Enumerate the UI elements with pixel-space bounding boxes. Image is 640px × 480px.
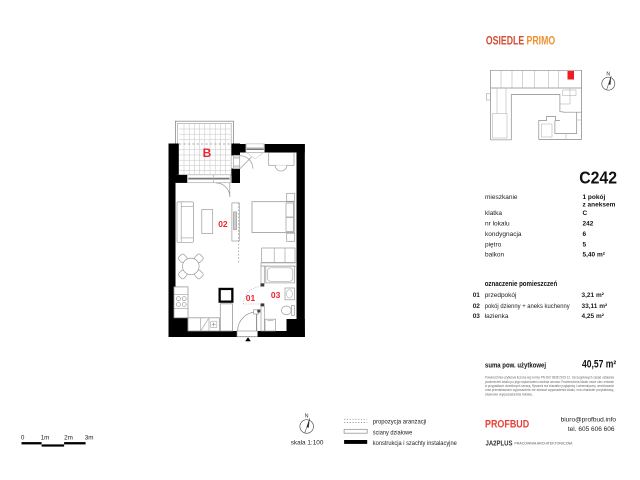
svg-text:N: N bbox=[606, 72, 610, 78]
svg-text:01: 01 bbox=[473, 292, 481, 299]
svg-text:03: 03 bbox=[271, 290, 281, 300]
svg-text:tel. 605 606 606: tel. 605 606 606 bbox=[568, 426, 615, 433]
svg-text:03: 03 bbox=[473, 313, 481, 320]
svg-text:z aneksem: z aneksem bbox=[583, 201, 616, 208]
svg-text:1 pokój: 1 pokój bbox=[583, 194, 606, 201]
svg-text:pokój dzienny + aneks kuchenny: pokój dzienny + aneks kuchenny bbox=[485, 303, 571, 310]
svg-text:B: B bbox=[203, 146, 212, 160]
svg-text:5: 5 bbox=[583, 241, 587, 248]
svg-text:balkon: balkon bbox=[485, 252, 505, 259]
svg-text:3m: 3m bbox=[85, 435, 94, 442]
svg-text:suma pow. użytkowej: suma pow. użytkowej bbox=[485, 360, 546, 369]
svg-text:33,11 m²: 33,11 m² bbox=[582, 303, 608, 310]
svg-text:C242: C242 bbox=[579, 168, 617, 188]
svg-text:0: 0 bbox=[21, 435, 25, 442]
svg-text:C: C bbox=[583, 210, 588, 217]
svg-text:5,40 m²: 5,40 m² bbox=[583, 252, 606, 259]
svg-text:nr lokalu: nr lokalu bbox=[485, 221, 510, 228]
svg-text:01: 01 bbox=[246, 293, 256, 303]
svg-text:4,25 m²: 4,25 m² bbox=[582, 313, 605, 320]
svg-text:40,57 m²: 40,57 m² bbox=[582, 359, 617, 371]
svg-text:02: 02 bbox=[218, 219, 228, 229]
svg-text:N: N bbox=[305, 414, 309, 420]
svg-text:JA2PLUS: JA2PLUS bbox=[486, 440, 513, 447]
svg-text:2m: 2m bbox=[64, 435, 73, 442]
svg-text:łazienka: łazienka bbox=[485, 313, 509, 320]
svg-text:6: 6 bbox=[583, 231, 587, 238]
svg-text:3,21 m²: 3,21 m² bbox=[582, 292, 605, 299]
svg-text:biuro@profbud.info: biuro@profbud.info bbox=[561, 417, 617, 424]
svg-text:PROFBUD: PROFBUD bbox=[485, 418, 529, 430]
svg-text:klatka: klatka bbox=[485, 210, 502, 217]
svg-text:ściany działowe: ściany działowe bbox=[373, 429, 413, 436]
svg-text:propozycja aranżacji: propozycja aranżacji bbox=[373, 419, 427, 426]
svg-text:242: 242 bbox=[583, 221, 594, 228]
svg-text:PRACOWNIA ARCHITEKTONICZNA: PRACOWNIA ARCHITEKTONICZNA bbox=[515, 441, 573, 446]
svg-text:stanowi wyposażenia lokalu.: stanowi wyposażenia lokalu. bbox=[485, 392, 533, 396]
svg-text:skala 1:100: skala 1:100 bbox=[291, 439, 324, 446]
svg-text:mieszkanie: mieszkanie bbox=[485, 194, 518, 201]
svg-text:kondygnacja: kondygnacja bbox=[485, 231, 522, 238]
svg-text:przedpokój: przedpokój bbox=[485, 292, 517, 299]
svg-text:1m: 1m bbox=[41, 435, 50, 442]
svg-text:02: 02 bbox=[473, 303, 481, 310]
svg-text:piętro: piętro bbox=[485, 241, 502, 248]
svg-text:oznaczenie pomieszczeń: oznaczenie pomieszczeń bbox=[485, 281, 558, 288]
svg-text:konstrukcja i szachty instalac: konstrukcja i szachty instalacyjne bbox=[373, 440, 458, 447]
svg-text:OSIEDLE PRIMO: OSIEDLE PRIMO bbox=[486, 33, 555, 47]
